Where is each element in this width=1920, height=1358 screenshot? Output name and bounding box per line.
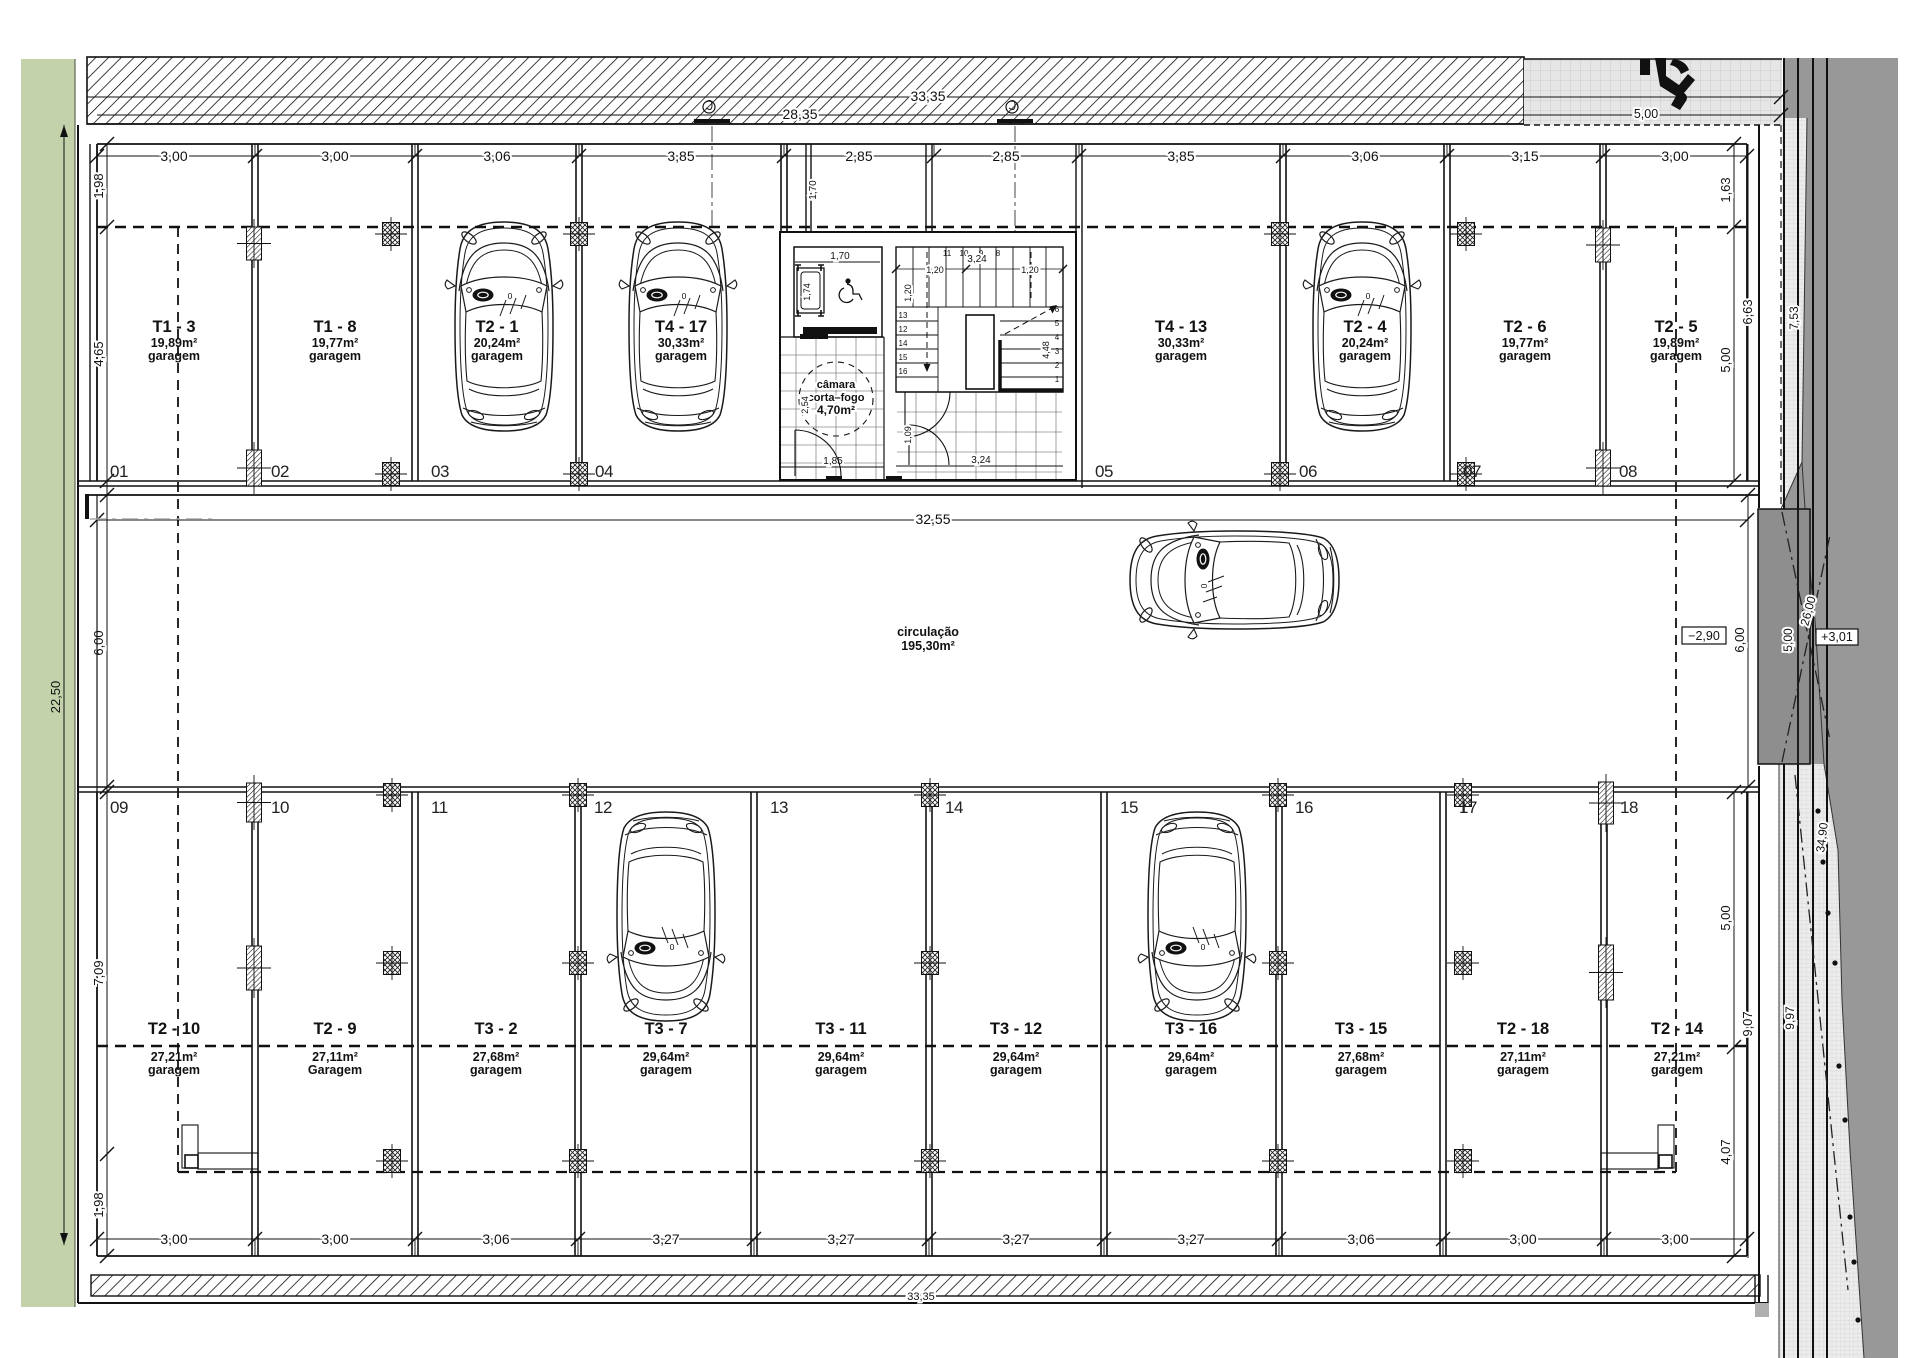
svg-text:19,77m²: 19,77m²	[1502, 336, 1549, 350]
svg-text:17: 17	[1459, 798, 1477, 817]
svg-text:22,50: 22,50	[48, 681, 63, 714]
svg-text:1,98: 1,98	[91, 1192, 106, 1217]
svg-text:19,89m²: 19,89m²	[151, 336, 198, 350]
svg-text:garagem: garagem	[471, 349, 523, 363]
svg-text:3,00: 3,00	[160, 148, 187, 164]
svg-text:1,98: 1,98	[91, 173, 106, 198]
svg-text:11: 11	[431, 798, 448, 817]
svg-text:03: 03	[431, 462, 449, 481]
svg-text:3,24: 3,24	[967, 254, 987, 265]
svg-text:1,20: 1,20	[926, 265, 944, 275]
svg-text:garagem: garagem	[655, 349, 707, 363]
svg-text:garagem: garagem	[1650, 349, 1702, 363]
svg-text:27,68m²: 27,68m²	[1338, 1050, 1385, 1064]
svg-text:3,27: 3,27	[827, 1231, 854, 1247]
svg-text:garagem: garagem	[990, 1063, 1042, 1077]
svg-text:2: 2	[1055, 361, 1060, 370]
svg-text:32,55: 32,55	[915, 511, 950, 527]
svg-text:19,89m²: 19,89m²	[1653, 336, 1700, 350]
svg-text:garagem: garagem	[1339, 349, 1391, 363]
svg-text:06: 06	[1299, 462, 1317, 481]
svg-text:garagem: garagem	[1497, 1063, 1549, 1077]
svg-text:14: 14	[899, 339, 908, 348]
svg-text:16: 16	[1295, 798, 1313, 817]
svg-text:1,20: 1,20	[903, 284, 913, 302]
svg-text:T3 - 16: T3 - 16	[1165, 1020, 1217, 1038]
svg-text:T3 - 15: T3 - 15	[1335, 1020, 1387, 1038]
svg-text:27,68m²: 27,68m²	[473, 1050, 520, 1064]
svg-text:7,09: 7,09	[91, 960, 106, 985]
svg-text:T3 - 2: T3 - 2	[474, 1020, 517, 1038]
svg-text:garagem: garagem	[309, 349, 361, 363]
svg-text:33,35: 33,35	[907, 1291, 935, 1303]
svg-text:1,20: 1,20	[1021, 265, 1039, 275]
svg-text:29,64m²: 29,64m²	[993, 1050, 1040, 1064]
svg-text:1,70: 1,70	[808, 180, 819, 200]
svg-text:Garagem: Garagem	[308, 1063, 362, 1077]
svg-text:15: 15	[899, 353, 908, 362]
svg-text:9,07: 9,07	[1740, 1011, 1755, 1036]
svg-text:14: 14	[945, 798, 963, 817]
svg-text:4: 4	[1055, 333, 1060, 342]
svg-text:garagem: garagem	[148, 1063, 200, 1077]
svg-text:3,27: 3,27	[652, 1231, 679, 1247]
svg-text:195,30m²: 195,30m²	[901, 639, 955, 653]
svg-text:27,21m²: 27,21m²	[151, 1050, 198, 1064]
svg-text:T2 - 5: T2 - 5	[1654, 318, 1697, 336]
svg-text:T4 - 13: T4 - 13	[1155, 318, 1207, 336]
svg-text:6: 6	[1055, 305, 1060, 314]
svg-text:3,85: 3,85	[1167, 148, 1194, 164]
svg-text:08: 08	[1619, 462, 1637, 481]
svg-text:4,65: 4,65	[91, 341, 106, 366]
svg-text:29,64m²: 29,64m²	[1168, 1050, 1215, 1064]
svg-text:3,27: 3,27	[1177, 1231, 1204, 1247]
svg-text:3,06: 3,06	[1351, 148, 1378, 164]
svg-text:8: 8	[996, 249, 1001, 258]
svg-text:2,54: 2,54	[800, 396, 810, 414]
svg-text:07: 07	[1463, 462, 1481, 481]
svg-text:5,00: 5,00	[1718, 347, 1733, 372]
svg-text:7,53: 7,53	[1787, 306, 1801, 330]
svg-text:T1 - 3: T1 - 3	[152, 318, 195, 336]
svg-text:3,00: 3,00	[321, 1231, 348, 1247]
svg-text:28,35: 28,35	[782, 106, 817, 122]
svg-text:3,00: 3,00	[1661, 148, 1688, 164]
svg-text:3,27: 3,27	[1002, 1231, 1029, 1247]
svg-text:12: 12	[594, 798, 612, 817]
svg-text:6,00: 6,00	[91, 630, 106, 655]
svg-text:4,70m²: 4,70m²	[817, 403, 855, 417]
svg-text:16: 16	[899, 367, 908, 376]
svg-text:02: 02	[271, 462, 289, 481]
svg-text:T3 - 12: T3 - 12	[990, 1020, 1042, 1038]
svg-text:T2 - 10: T2 - 10	[148, 1020, 200, 1038]
svg-text:20,24m²: 20,24m²	[1342, 336, 1389, 350]
svg-text:1: 1	[1055, 375, 1060, 384]
svg-text:3,06: 3,06	[1347, 1231, 1374, 1247]
svg-text:10: 10	[271, 798, 289, 817]
svg-text:5,00: 5,00	[1718, 905, 1733, 930]
svg-text:garagem: garagem	[470, 1063, 522, 1077]
svg-text:27,21m²: 27,21m²	[1654, 1050, 1701, 1064]
svg-text:3,15: 3,15	[1511, 148, 1538, 164]
svg-text:+3,01: +3,01	[1821, 630, 1853, 644]
svg-text:T2 - 4: T2 - 4	[1343, 318, 1387, 336]
svg-text:4,48: 4,48	[1041, 341, 1051, 359]
svg-text:27,11m²: 27,11m²	[1500, 1050, 1546, 1064]
svg-text:12: 12	[899, 325, 908, 334]
svg-text:2,85: 2,85	[992, 148, 1019, 164]
svg-text:T2 - 18: T2 - 18	[1497, 1020, 1549, 1038]
svg-text:5: 5	[1055, 319, 1060, 328]
svg-text:circulação: circulação	[897, 625, 959, 639]
svg-text:T2 - 9: T2 - 9	[313, 1020, 356, 1038]
svg-text:2,85: 2,85	[845, 148, 872, 164]
svg-text:33,35: 33,35	[910, 88, 945, 104]
svg-text:T1 - 8: T1 - 8	[313, 318, 356, 336]
svg-text:3,06: 3,06	[483, 148, 510, 164]
svg-text:11: 11	[943, 249, 952, 258]
svg-text:1,63: 1,63	[1718, 177, 1733, 202]
svg-text:garagem: garagem	[1165, 1063, 1217, 1077]
svg-text:garagem: garagem	[1335, 1063, 1387, 1077]
svg-text:T2 - 6: T2 - 6	[1503, 318, 1546, 336]
svg-text:garagem: garagem	[815, 1063, 867, 1077]
svg-text:garagem: garagem	[1499, 349, 1551, 363]
svg-text:04: 04	[595, 462, 613, 481]
svg-text:garagem: garagem	[1155, 349, 1207, 363]
svg-text:6,00: 6,00	[1732, 627, 1747, 652]
svg-text:garagem: garagem	[1651, 1063, 1703, 1077]
svg-text:garagem: garagem	[640, 1063, 692, 1077]
svg-text:1,09: 1,09	[903, 426, 913, 444]
svg-text:3,24: 3,24	[971, 455, 991, 466]
svg-text:30,33m²: 30,33m²	[1158, 336, 1205, 350]
svg-text:30,33m²: 30,33m²	[658, 336, 705, 350]
svg-text:T2 - 1: T2 - 1	[475, 318, 518, 336]
svg-text:05: 05	[1095, 462, 1113, 481]
svg-text:15: 15	[1120, 798, 1138, 817]
svg-text:1,70: 1,70	[830, 251, 850, 262]
svg-text:3,00: 3,00	[160, 1231, 187, 1247]
svg-text:19,77m²: 19,77m²	[312, 336, 359, 350]
svg-text:29,64m²: 29,64m²	[818, 1050, 865, 1064]
svg-text:câmara: câmara	[817, 379, 856, 391]
svg-text:T3 - 11: T3 - 11	[815, 1020, 866, 1038]
svg-text:29,64m²: 29,64m²	[643, 1050, 690, 1064]
svg-text:13: 13	[899, 311, 908, 320]
svg-text:01: 01	[110, 462, 128, 481]
svg-text:9,97: 9,97	[1783, 1006, 1797, 1030]
svg-text:3,00: 3,00	[1509, 1231, 1536, 1247]
svg-text:27,11m²: 27,11m²	[312, 1050, 358, 1064]
svg-text:4,07: 4,07	[1718, 1139, 1733, 1164]
svg-text:3,00: 3,00	[1661, 1231, 1688, 1247]
svg-text:T4 - 17: T4 - 17	[655, 318, 707, 336]
svg-text:5,00: 5,00	[1781, 628, 1795, 652]
svg-text:6,63: 6,63	[1740, 299, 1755, 324]
svg-text:3,85: 3,85	[667, 148, 694, 164]
svg-text:−2,90: −2,90	[1688, 629, 1720, 643]
svg-text:18: 18	[1620, 798, 1638, 817]
svg-text:T3 - 7: T3 - 7	[644, 1020, 687, 1038]
svg-text:5,00: 5,00	[1634, 107, 1658, 121]
svg-text:garagem: garagem	[148, 349, 200, 363]
svg-text:3,06: 3,06	[482, 1231, 509, 1247]
svg-text:1,74: 1,74	[802, 283, 812, 301]
svg-text:3,00: 3,00	[321, 148, 348, 164]
svg-text:09: 09	[110, 798, 128, 817]
svg-text:T2 - 14: T2 - 14	[1651, 1020, 1704, 1038]
svg-text:3: 3	[1055, 347, 1060, 356]
svg-text:20,24m²: 20,24m²	[474, 336, 521, 350]
svg-text:13: 13	[770, 798, 788, 817]
